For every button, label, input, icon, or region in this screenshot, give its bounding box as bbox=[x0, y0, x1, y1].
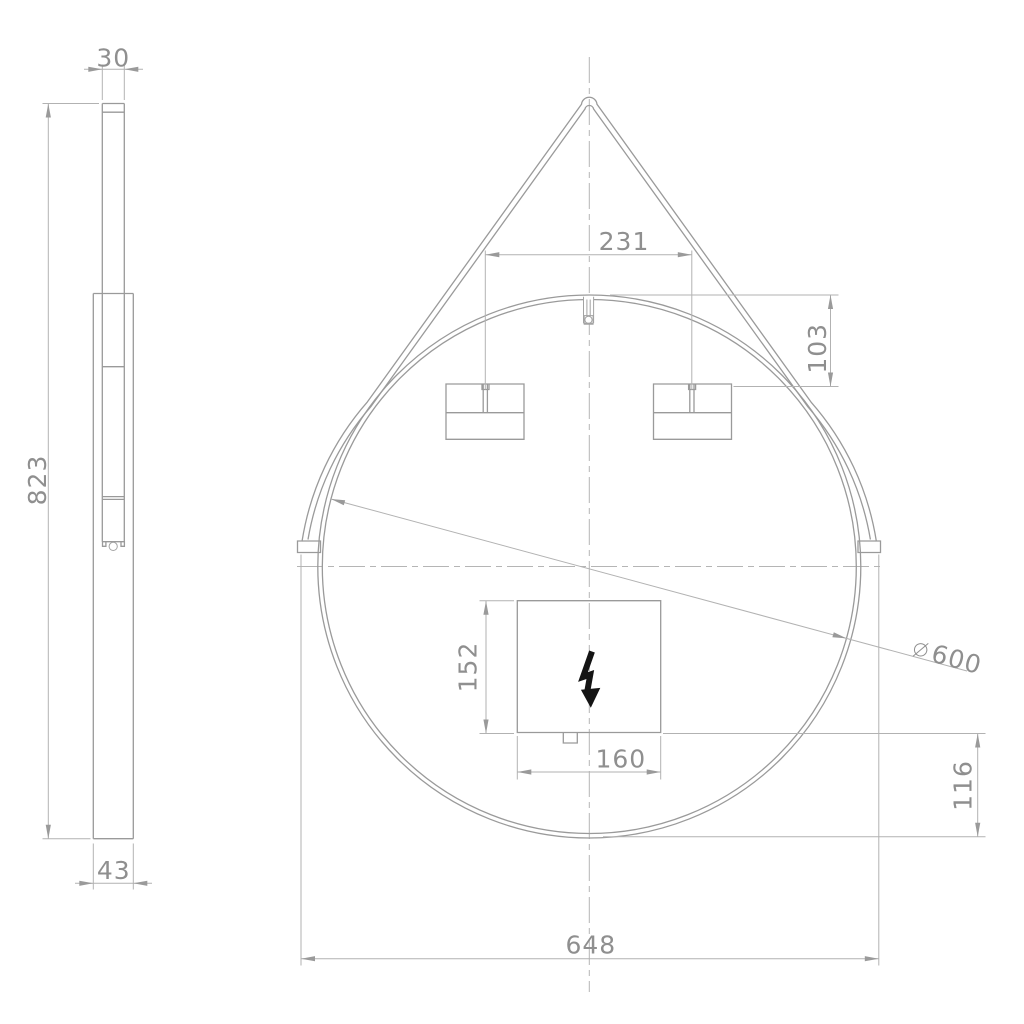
arrowhead bbox=[483, 601, 488, 615]
dim-height: 823 bbox=[23, 104, 99, 839]
diameter-label-group: 600 bbox=[911, 634, 985, 680]
arrowhead bbox=[331, 499, 345, 505]
dim-label-648: 648 bbox=[565, 931, 616, 960]
arrowhead bbox=[828, 295, 833, 309]
arrowhead bbox=[678, 252, 692, 257]
arrowhead bbox=[485, 252, 499, 257]
arrowhead bbox=[975, 823, 980, 837]
dim-label-231: 231 bbox=[599, 227, 650, 256]
arrowhead bbox=[79, 881, 93, 886]
strap-top-notch bbox=[584, 297, 594, 324]
side-view: 30 823 43 bbox=[23, 44, 152, 890]
drawing-svg: 30 823 43 bbox=[0, 0, 1024, 1024]
dim-label-43: 43 bbox=[97, 856, 131, 885]
side-profile-outline bbox=[93, 104, 133, 839]
side-strap-pin bbox=[109, 542, 117, 550]
dim-junction-box-height: 152 bbox=[454, 601, 515, 734]
dim-label-116: 116 bbox=[949, 760, 978, 811]
dim-label-600: 600 bbox=[929, 639, 985, 680]
dim-label-823: 823 bbox=[23, 455, 52, 506]
lightning-bolt-icon bbox=[581, 652, 600, 708]
arrowhead bbox=[46, 104, 51, 118]
arrowhead bbox=[46, 825, 51, 839]
dim-label-30: 30 bbox=[96, 44, 130, 73]
dim-bracket-vertical-offset: 103 bbox=[610, 295, 839, 387]
arrowhead bbox=[647, 769, 661, 774]
dim-top-thickness: 30 bbox=[84, 44, 143, 101]
mounting-bracket-right bbox=[654, 384, 732, 439]
arrowhead bbox=[517, 769, 531, 774]
dim-label-152: 152 bbox=[454, 642, 483, 693]
arrowhead bbox=[865, 956, 879, 961]
dim-diameter: 600 bbox=[331, 499, 985, 680]
dim-label-103: 103 bbox=[803, 323, 832, 374]
arrowhead bbox=[832, 632, 846, 638]
front-view: 231 103 600 152 bbox=[297, 57, 986, 992]
arrowhead bbox=[133, 881, 147, 886]
arrowhead bbox=[975, 734, 980, 748]
dim-label-160: 160 bbox=[595, 745, 646, 774]
diameter-leader-line bbox=[331, 499, 967, 671]
mounting-bracket-left bbox=[446, 384, 524, 439]
dim-overall-width: 648 bbox=[301, 555, 879, 966]
dim-bottom-depth: 43 bbox=[75, 844, 152, 890]
arrowhead bbox=[301, 956, 315, 961]
technical-drawing-canvas: 30 823 43 bbox=[0, 0, 1024, 1024]
arrowhead bbox=[483, 720, 488, 734]
